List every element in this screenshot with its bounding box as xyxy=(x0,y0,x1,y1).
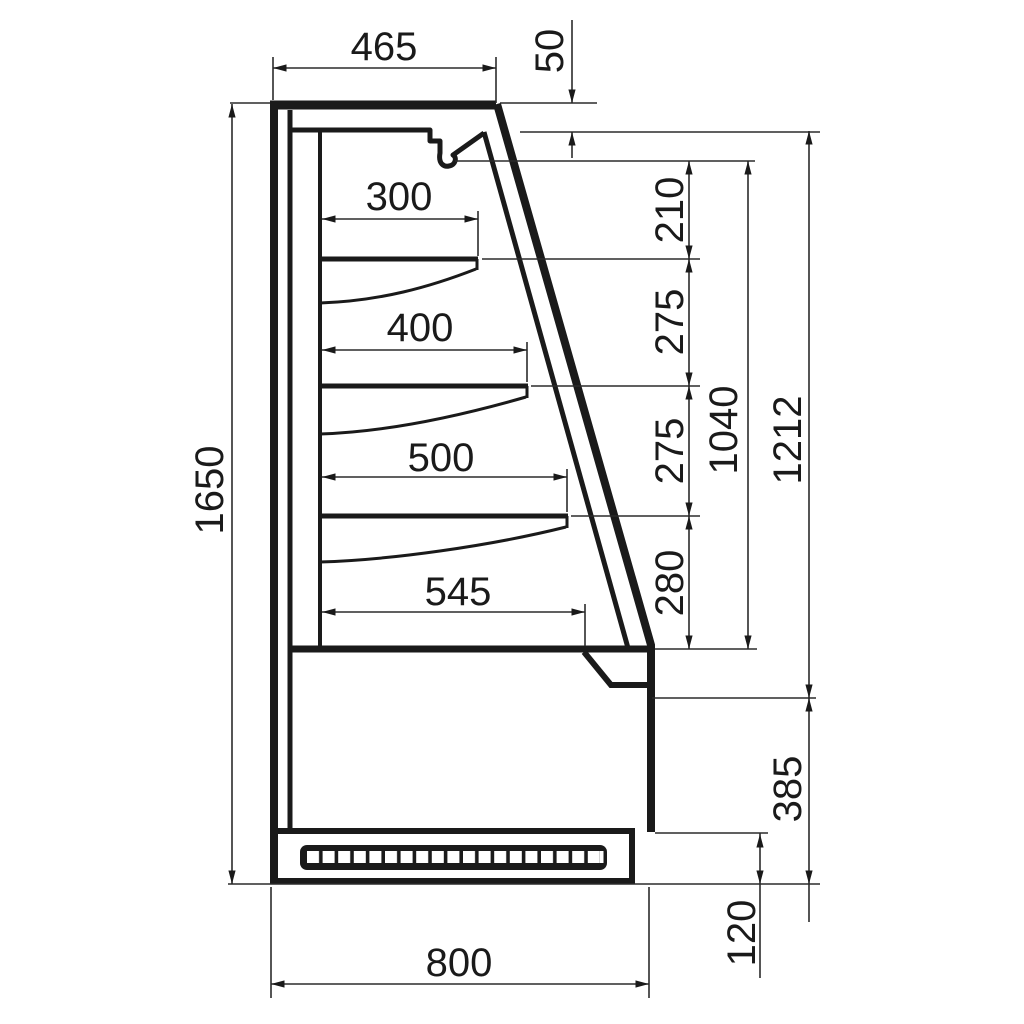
label-shelf3-depth: 500 xyxy=(408,436,475,480)
label-top-depth: 465 xyxy=(351,25,418,69)
label-front-height: 1212 xyxy=(766,396,810,485)
label-shelf1-depth: 300 xyxy=(366,175,433,219)
label-gap-shelf3-deck: 280 xyxy=(648,550,692,617)
label-canopy-front: 50 xyxy=(528,29,572,74)
label-plinth-height: 120 xyxy=(720,900,764,967)
cabinet-profile-drawing: 465 50 300 400 500 545 210 275 275 280 1… xyxy=(0,0,1024,1024)
ventilation-grille xyxy=(300,845,607,870)
grille-slots xyxy=(307,851,603,863)
label-gap-shelf1-shelf2: 275 xyxy=(648,289,692,356)
label-opening-height: 1040 xyxy=(702,386,746,475)
label-total-height: 1650 xyxy=(188,446,232,535)
label-gap-canopy-shelf1: 210 xyxy=(648,177,692,244)
label-base-width: 800 xyxy=(426,941,493,985)
grille-end-slot xyxy=(600,851,604,863)
label-shelf2-depth: 400 xyxy=(387,306,454,350)
label-lower-front-height: 385 xyxy=(766,756,810,823)
label-gap-shelf2-shelf3: 275 xyxy=(648,418,692,485)
label-deck-depth: 545 xyxy=(425,570,492,614)
